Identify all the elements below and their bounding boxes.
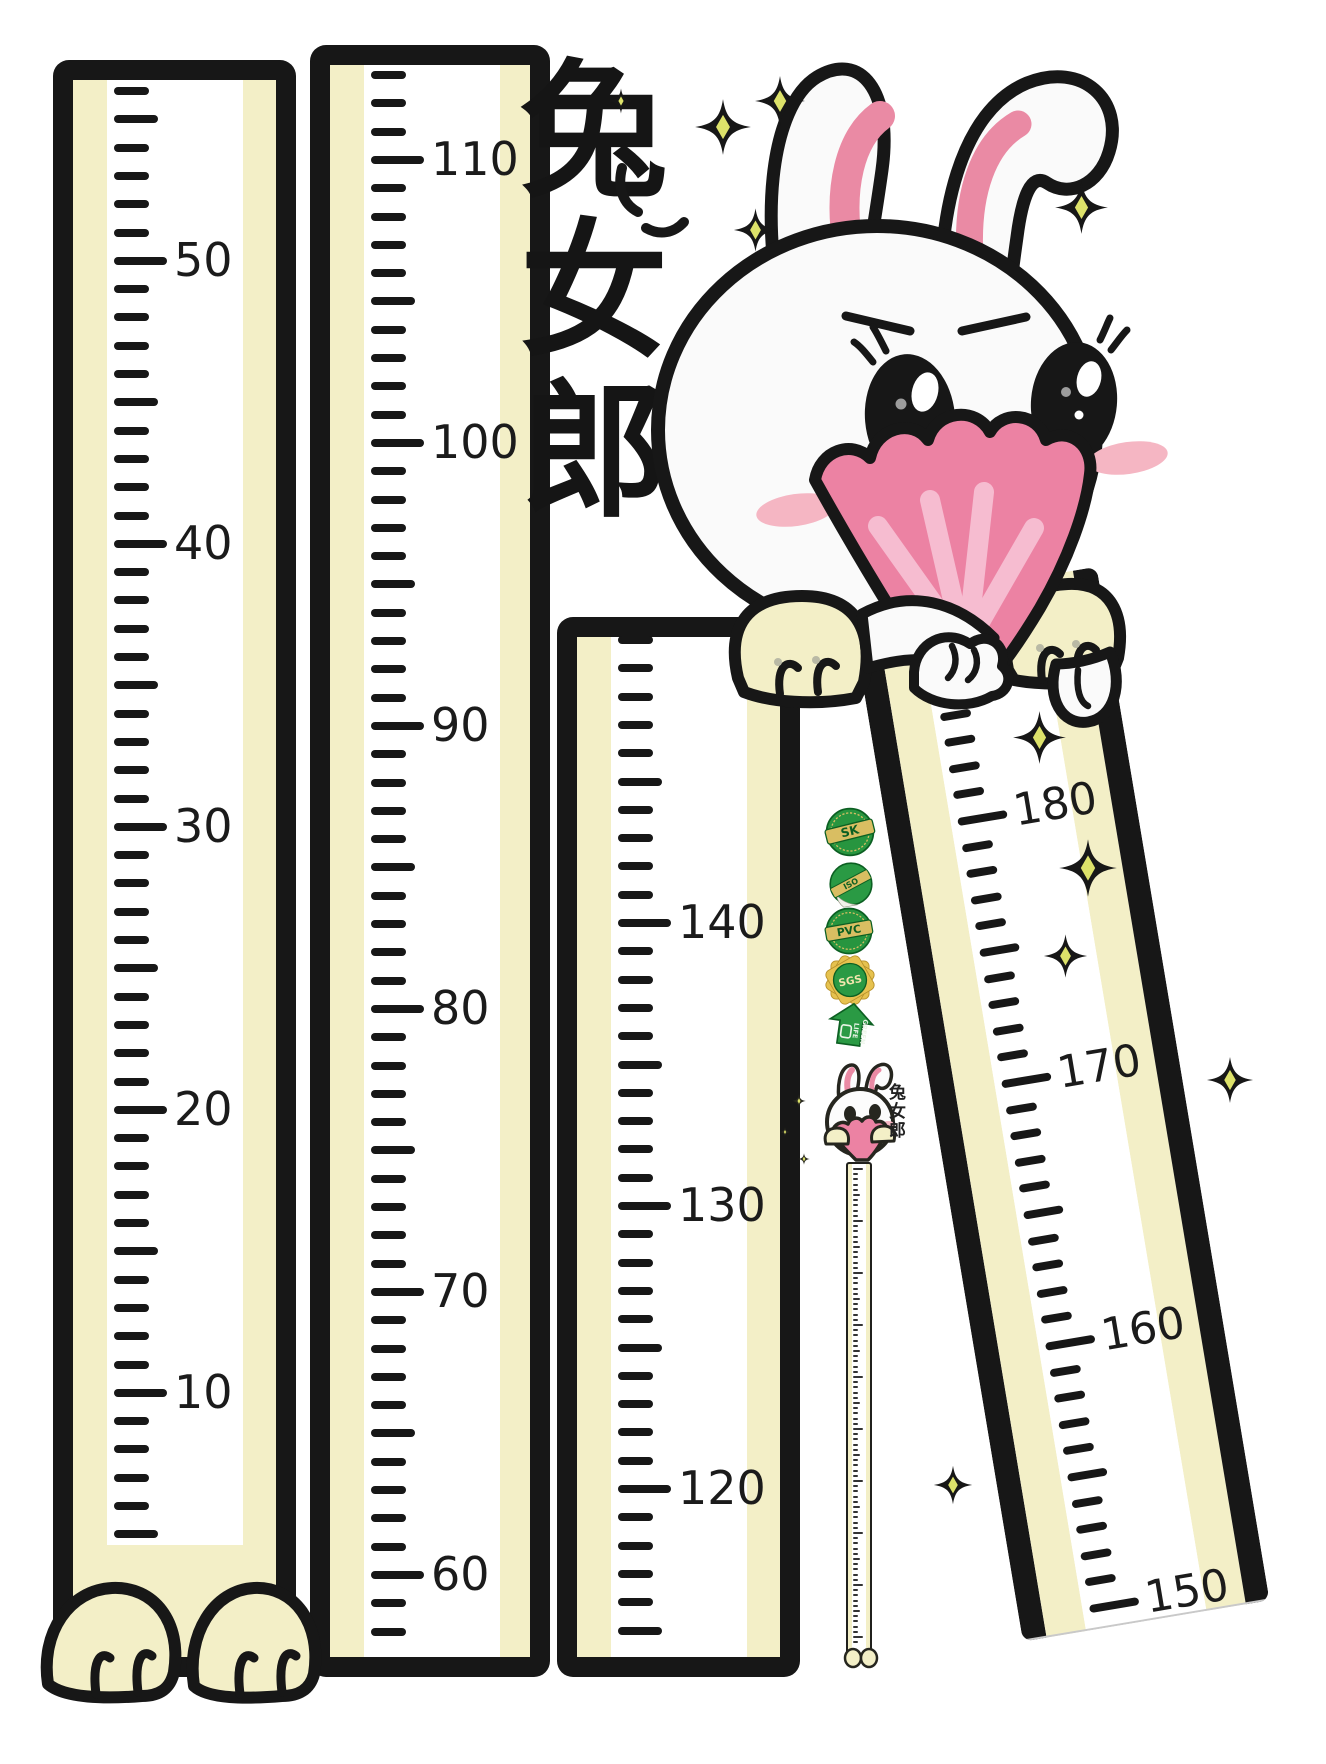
ruler-tick-label: 60 — [431, 1551, 490, 1597]
ruler-tick — [953, 787, 985, 800]
mini-preview-title: 兔女郎 — [889, 1084, 908, 1141]
ruler-tick — [371, 694, 406, 702]
ruler-tick — [853, 1522, 858, 1524]
ruler-tick — [618, 1570, 653, 1578]
ruler-tick — [853, 1319, 858, 1321]
ruler-tick — [853, 1532, 863, 1534]
ruler-tick — [1054, 1390, 1086, 1403]
ruler-tick — [618, 1174, 653, 1182]
ruler-tick — [371, 411, 406, 419]
ruler-tick — [371, 524, 406, 532]
ruler-tick — [1076, 1521, 1108, 1534]
ruler-tick — [371, 750, 406, 758]
sparkle-icon — [1206, 1036, 1254, 1124]
ruler-tick — [114, 115, 158, 123]
badge-pvc: PVC — [824, 906, 874, 956]
ruler-tick — [853, 1636, 863, 1638]
ruler-tick — [853, 1610, 860, 1612]
ruler-major-tick: 170 — [1001, 1072, 1052, 1088]
ruler-tick — [1058, 1416, 1090, 1429]
ruler-tick — [1010, 1128, 1042, 1141]
ruler-major-tick: 110 — [371, 156, 424, 164]
ruler-major-tick: 10 — [114, 1389, 167, 1397]
ruler-tick — [114, 1474, 149, 1482]
ruler-tick — [975, 918, 1007, 931]
ruler-tick — [1023, 1205, 1064, 1219]
ruler-tick — [618, 1428, 653, 1436]
ruler-tick — [114, 172, 149, 180]
ruler-tick — [1019, 1180, 1051, 1193]
ruler-tick — [853, 1220, 863, 1222]
ruler-tick — [853, 1386, 858, 1388]
ruler-tick — [371, 580, 415, 588]
ruler-tick — [853, 1173, 858, 1175]
ruler-tick — [853, 1506, 860, 1508]
ruler-tick — [371, 609, 406, 617]
ruler-tick — [853, 1516, 858, 1518]
sparkle-icon — [754, 42, 806, 160]
ruler-tick — [853, 1314, 858, 1316]
ruler-tick — [853, 1438, 858, 1440]
ruler-major-tick: 100 — [371, 439, 424, 447]
ruler-tick — [853, 1277, 858, 1279]
ruler-tick — [618, 1542, 653, 1550]
ruler-tick — [114, 993, 149, 1001]
ruler-tick — [371, 948, 406, 956]
ruler-tick-label: 140 — [678, 899, 766, 945]
ruler-tick — [853, 1631, 858, 1633]
ruler-tick — [371, 1062, 406, 1070]
ruler-tick — [853, 1594, 858, 1596]
ruler-tick — [984, 970, 1016, 983]
ruler-tick — [853, 1558, 860, 1560]
ruler-tick — [114, 1162, 149, 1170]
ruler-tick-label: 40 — [174, 520, 233, 566]
ruler-tick — [853, 1433, 858, 1435]
ruler-tick — [853, 1475, 858, 1477]
ruler-segment-10-50: 5040302010 — [53, 60, 296, 1677]
ruler-major-tick: 120 — [618, 1485, 671, 1493]
ruler-tick — [371, 71, 406, 79]
ruler-tick — [853, 1225, 858, 1227]
ruler-tick — [371, 382, 406, 390]
ruler-tick — [114, 738, 149, 746]
ruler-tick — [948, 761, 980, 774]
ruler-tick-label: 100 — [431, 419, 519, 465]
ruler-tick — [1014, 1154, 1046, 1167]
ruler-tick — [371, 1033, 406, 1041]
ruler-tick — [853, 1480, 863, 1482]
ruler-tick — [618, 1117, 653, 1125]
ruler-tick — [371, 496, 406, 504]
ruler-tick — [618, 976, 653, 984]
ruler-tick — [853, 1568, 858, 1570]
ruler-tick — [853, 1501, 858, 1503]
ruler-tick — [853, 1548, 858, 1550]
ruler-tick — [114, 398, 158, 406]
ruler-tick-label: 10 — [174, 1369, 233, 1415]
ruler-tick — [853, 1199, 858, 1201]
ruler-white-area: 5040302010 — [107, 80, 243, 1545]
ruler-tick — [853, 1444, 858, 1446]
ruler-scale-10-50: 5040302010 — [107, 80, 243, 1545]
ruler-tick — [853, 1246, 860, 1248]
ruler-tick — [114, 1304, 149, 1312]
ruler-tick — [371, 977, 406, 985]
ruler-tick — [853, 1272, 863, 1274]
ruler-tick — [114, 879, 149, 887]
ruler-tick — [114, 1191, 149, 1199]
ruler-tick — [371, 1458, 406, 1466]
ruler-tick — [853, 1350, 860, 1352]
ruler-tick — [371, 184, 406, 192]
ruler-major-tick: 140 — [618, 919, 671, 927]
ruler-major-tick: 90 — [371, 722, 424, 730]
sparkle-icon — [933, 1449, 973, 1521]
ruler-tick — [114, 653, 149, 661]
ruler-tick — [371, 1401, 406, 1409]
ruler-tick — [371, 1090, 406, 1098]
ruler-tick — [853, 1537, 858, 1539]
ruler-tick-label: 80 — [431, 985, 490, 1031]
ruler-tick — [853, 1189, 858, 1191]
sparkle-icon — [798, 1148, 810, 1170]
ruler-tick — [853, 1418, 858, 1420]
ruler-tick — [1063, 1443, 1095, 1456]
ruler-major-tick: 40 — [114, 540, 167, 548]
ruler-tick — [853, 1579, 858, 1581]
ruler-tick — [853, 1527, 858, 1529]
mini-rabbit-feet — [840, 1646, 880, 1670]
ruler-major-tick: 30 — [114, 823, 167, 831]
ruler-white-area: 140130120 — [611, 637, 747, 1657]
ruler-tick — [979, 943, 1020, 957]
rabbit-hand — [914, 637, 1008, 704]
ruler-tick — [853, 1204, 858, 1206]
ruler-tick — [853, 1589, 858, 1591]
ruler-tick-label: 120 — [678, 1465, 766, 1511]
ruler-tick — [853, 1496, 858, 1498]
ruler-tick — [371, 1486, 406, 1494]
ruler-tick-label: 150 — [1142, 1563, 1232, 1620]
ruler-tick — [371, 807, 406, 815]
ruler-tick — [853, 1402, 860, 1404]
ruler-tick — [853, 1371, 858, 1373]
ruler-tick — [853, 1376, 863, 1378]
ruler-major-tick: 150 — [1089, 1597, 1140, 1613]
ruler-tick — [618, 1145, 653, 1153]
ruler-tick — [618, 1230, 653, 1238]
ruler-tick — [618, 1032, 653, 1040]
ruler-tick — [992, 1023, 1024, 1036]
ruler-tick — [853, 1355, 858, 1357]
ruler-tick — [371, 354, 406, 362]
ruler-tick — [371, 552, 406, 560]
ruler-tick — [371, 1514, 406, 1522]
ruler-tick — [853, 1605, 858, 1607]
ruler-tick — [853, 1194, 860, 1196]
ruler-tick — [371, 1345, 406, 1353]
ruler-major-tick: 160 — [1045, 1335, 1096, 1351]
sparkle-icon — [780, 1122, 790, 1142]
badge-sk: SK — [824, 806, 876, 858]
ruler-tick — [853, 1563, 858, 1565]
ruler-tick — [853, 1428, 863, 1430]
ruler-tick — [371, 297, 415, 305]
ruler-tick — [618, 749, 653, 757]
ruler-tick — [853, 1184, 858, 1186]
sparkle-icon — [792, 1088, 806, 1114]
ruler-tick — [853, 1308, 858, 1310]
ruler-tick — [618, 1344, 662, 1352]
ruler-tick — [962, 839, 994, 852]
ruler-tick — [853, 1574, 858, 1576]
ruler-tick — [618, 1513, 653, 1521]
ruler-tick — [853, 1340, 858, 1342]
ruler-tick — [114, 1445, 149, 1453]
ruler-tick — [618, 1457, 653, 1465]
ruler-tick — [1036, 1285, 1068, 1298]
ruler-major-tick: 80 — [371, 1005, 424, 1013]
ruler-tick — [114, 1502, 149, 1510]
ruler-major-tick: 60 — [371, 1571, 424, 1579]
ruler-tick — [853, 1251, 858, 1253]
ruler-tick — [853, 1553, 858, 1555]
ruler-major-tick: 180 — [957, 810, 1008, 826]
ruler-tick — [371, 213, 406, 221]
ruler-tick — [371, 1543, 406, 1551]
ruler-tick — [371, 1373, 406, 1381]
ruler-tick — [853, 1412, 858, 1414]
ruler-tick-label: 30 — [174, 803, 233, 849]
ruler-tick — [114, 1219, 149, 1227]
ruler-tick — [114, 795, 149, 803]
ruler-tick — [970, 892, 1002, 905]
ruler-tick — [371, 1628, 406, 1636]
ruler-tick — [1005, 1102, 1037, 1115]
ruler-tick — [853, 1615, 858, 1617]
sparkle-icon — [1012, 690, 1067, 785]
ruler-tick — [371, 835, 406, 843]
ruler-tick — [853, 1449, 858, 1451]
ruler-tick-label: 50 — [174, 237, 233, 283]
ruler-tick — [618, 834, 653, 842]
ruler-tick — [1027, 1233, 1059, 1246]
sparkle-icon — [733, 185, 778, 275]
badge-sgs: SGS — [824, 954, 876, 1006]
ruler-tick — [371, 467, 406, 475]
ruler-tick — [853, 1293, 858, 1295]
ruler-tick — [114, 1247, 158, 1255]
mini-preview-ruler — [846, 1162, 872, 1659]
ruler-tick — [618, 1061, 662, 1069]
ruler-tick — [1071, 1495, 1103, 1508]
ruler-tick — [114, 427, 149, 435]
ruler-tick — [853, 1324, 863, 1326]
ruler-tick — [371, 241, 406, 249]
ruler-tick — [114, 596, 149, 604]
sparkle-icon — [1058, 813, 1118, 923]
ruler-tick — [853, 1454, 860, 1456]
ruler-tick — [853, 1392, 858, 1394]
ruler-tick — [371, 665, 406, 673]
ruler-tick — [853, 1366, 858, 1368]
height-chart-poster: 5040302010 11010090807060 140130120 1801… — [0, 0, 1326, 1764]
ruler-tick — [853, 1381, 858, 1383]
ruler-tick — [853, 1288, 858, 1290]
ruler-tick — [853, 1298, 860, 1300]
ruler-tick-label: 130 — [678, 1182, 766, 1228]
ruler-major-tick: 70 — [371, 1288, 424, 1296]
ruler-tick — [114, 681, 158, 689]
ruler-tick — [853, 1423, 858, 1425]
ruler-tick — [114, 512, 149, 520]
ruler-tick — [114, 908, 149, 916]
ruler-tick — [853, 1360, 858, 1362]
ruler-tick — [114, 964, 158, 972]
ruler-tick — [371, 1260, 406, 1268]
ruler-tick — [371, 637, 406, 645]
ruler-tick — [853, 1490, 858, 1492]
sparkle-icon — [1043, 916, 1088, 996]
ruler-tick — [853, 1178, 858, 1180]
ruler-tick — [114, 342, 149, 350]
ruler-tick-label: 90 — [431, 702, 490, 748]
ruler-tick — [618, 1598, 653, 1606]
ruler-tick — [853, 1470, 858, 1472]
badge-green-life: GREEN LIFE — [826, 1002, 876, 1048]
ruler-tick — [618, 1372, 653, 1380]
sparkle-icon — [1054, 160, 1109, 255]
ruler-tick — [853, 1230, 858, 1232]
ruler-tick — [853, 1626, 858, 1628]
badge-iso: ISO — [827, 860, 875, 908]
ruler-tick — [618, 1259, 653, 1267]
ruler-tick — [853, 1334, 858, 1336]
ruler-tick — [114, 568, 149, 576]
twinkle-accent-icon — [612, 160, 707, 250]
ruler-tick — [114, 483, 149, 491]
ruler-tick — [618, 806, 653, 814]
ruler-major-tick: 20 — [114, 1106, 167, 1114]
ruler-tick — [114, 1361, 149, 1369]
sparkle-icon — [608, 75, 634, 127]
ruler-tick — [853, 1464, 858, 1466]
ruler-tick — [371, 326, 406, 334]
ruler-tick — [114, 87, 149, 95]
ruler-tick — [114, 766, 149, 774]
ruler-tick — [853, 1282, 858, 1284]
ruler-tick — [114, 1332, 149, 1340]
ruler-tick — [853, 1329, 858, 1331]
ruler-tick — [114, 1049, 149, 1057]
ruler-tick — [618, 947, 653, 955]
ruler-tick — [853, 1485, 858, 1487]
ruler-major-tick: 130 — [618, 1202, 671, 1210]
ruler-tick — [853, 1262, 858, 1264]
ruler-tick — [853, 1168, 863, 1170]
ruler-tick — [114, 1078, 149, 1086]
ruler-scale-60-110: 11010090807060 — [364, 65, 500, 1657]
ruler-tick — [853, 1600, 858, 1602]
ruler-tick — [853, 1345, 858, 1347]
ruler-tick — [853, 1241, 858, 1243]
ruler-tick — [853, 1303, 858, 1305]
ruler-tick — [114, 313, 149, 321]
ruler-tick — [371, 269, 406, 277]
ruler-tick-label: 110 — [431, 136, 519, 182]
ruler-tick — [1041, 1312, 1073, 1325]
ruler-tick — [1067, 1467, 1108, 1481]
ruler-white-area: 11010090807060 — [364, 65, 500, 1657]
ruler-segment-120-140: 140130120 — [557, 617, 800, 1677]
ruler-tick — [371, 863, 415, 871]
ruler-tick — [371, 1203, 406, 1211]
ruler-major-tick: 50 — [114, 257, 167, 265]
ruler-tick — [853, 1620, 858, 1622]
ruler-tick — [371, 128, 406, 136]
ruler-scale-120-140: 140130120 — [611, 637, 747, 1657]
ruler-tick — [114, 851, 149, 859]
ruler-tick — [997, 1049, 1029, 1062]
ruler-tick — [1080, 1548, 1112, 1561]
ruler-tick — [988, 997, 1020, 1010]
ruler-tick — [853, 1236, 858, 1238]
ruler-tick — [618, 1315, 653, 1323]
ruler-tick — [618, 1004, 653, 1012]
ruler-tick — [114, 1276, 149, 1284]
ruler-tick — [853, 1542, 858, 1544]
ruler-tick — [1032, 1259, 1064, 1272]
ruler-tick — [371, 1175, 406, 1183]
ruler-tick — [371, 1599, 406, 1607]
ruler-tick — [371, 920, 406, 928]
ruler-tick-label: 170 — [1054, 1039, 1144, 1096]
ruler-tick — [114, 710, 149, 718]
ruler-tick — [114, 1530, 158, 1538]
ruler-tick — [371, 779, 406, 787]
ruler-tick — [853, 1267, 858, 1269]
ruler-tick — [618, 891, 653, 899]
ruler-tick-label: 70 — [431, 1268, 490, 1314]
ruler-tick — [114, 370, 149, 378]
ruler-tick — [853, 1397, 858, 1399]
ruler-tick — [853, 1584, 863, 1586]
ruler-tick-label: 160 — [1098, 1301, 1188, 1358]
ruler-tick — [1049, 1364, 1081, 1377]
ruler-tick — [371, 1118, 406, 1126]
mini-ruler-scale — [848, 1164, 870, 1657]
ruler-tick — [371, 1316, 406, 1324]
ruler-tick — [618, 778, 662, 786]
ruler-tick — [966, 866, 998, 879]
ruler-tick — [853, 1511, 858, 1513]
ruler-tick — [944, 734, 976, 747]
ruler-tick — [114, 1021, 149, 1029]
ruler-tick — [1084, 1574, 1116, 1587]
ruler-tick — [853, 1459, 858, 1461]
ruler-tick — [114, 936, 149, 944]
ruler-tick — [114, 285, 149, 293]
ruler-tick — [853, 1407, 858, 1409]
ruler-tick — [853, 1215, 858, 1217]
ruler-tick — [618, 1287, 653, 1295]
ruler-tick — [618, 1627, 662, 1635]
ruler-tick — [371, 1146, 415, 1154]
rabbit-feet — [36, 1568, 328, 1708]
ruler-tick — [114, 455, 149, 463]
ruler-tick — [114, 625, 149, 633]
